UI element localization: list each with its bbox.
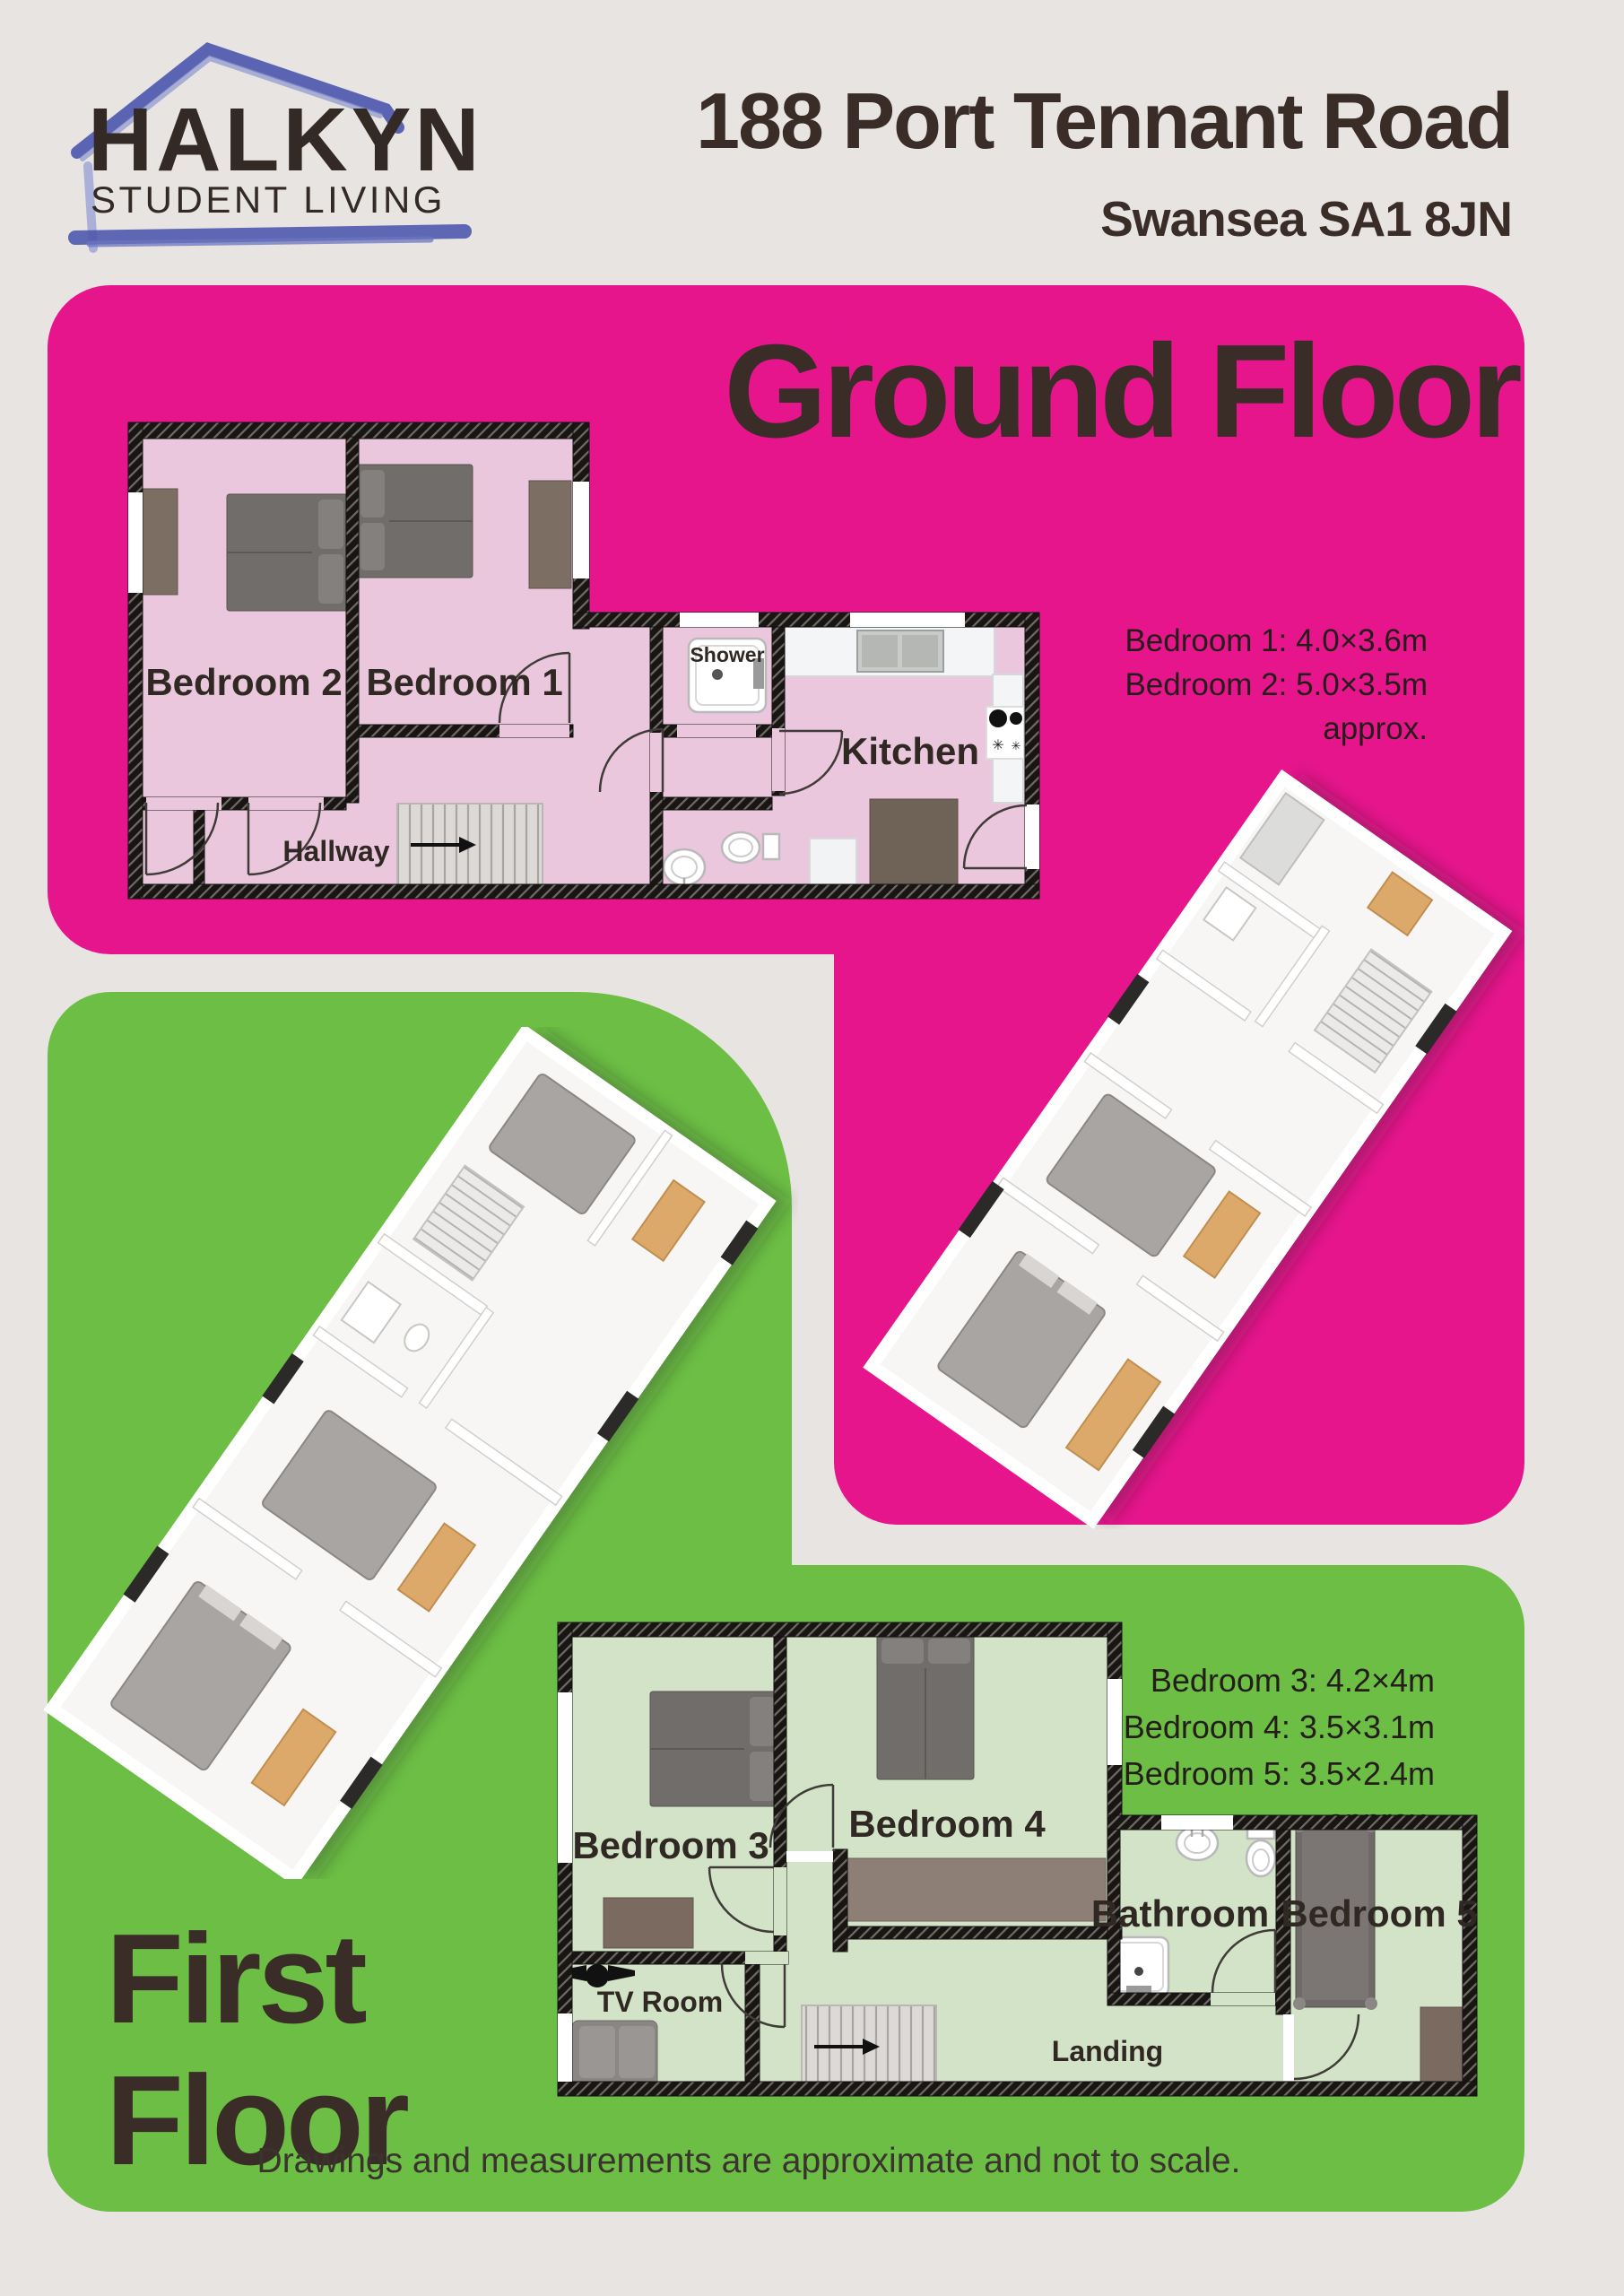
page-title: 188 Port Tennant Road bbox=[696, 75, 1512, 167]
first-floor-2d-plan: Bedroom 3 Bedroom 4 Bedroom 5 Bathroom T… bbox=[554, 1616, 1482, 2105]
fridge bbox=[810, 839, 856, 886]
room-label-hallway: Hallway bbox=[282, 835, 389, 867]
dresser bbox=[846, 1858, 1106, 1921]
room-label-landing: Landing bbox=[1052, 2035, 1163, 2067]
room-label-bedroom2: Bedroom 2 bbox=[145, 661, 342, 703]
room-label-shower: Shower bbox=[690, 643, 764, 666]
measurement-line: approx. bbox=[1125, 707, 1428, 751]
staircase bbox=[397, 804, 543, 886]
sofa bbox=[572, 2021, 657, 2089]
toilet bbox=[722, 832, 779, 863]
door-leaf bbox=[1283, 2014, 1294, 2081]
ground-floor-3d-render bbox=[861, 749, 1524, 1529]
door-leaf bbox=[786, 1851, 833, 1862]
double-bed bbox=[650, 1692, 780, 1806]
double-bed bbox=[227, 494, 350, 611]
room-label-tv-room: TV Room bbox=[597, 1986, 723, 2018]
halkyn-logo: HALKYN STUDENT LIVING bbox=[36, 22, 502, 274]
logo-underline-stroke-2 bbox=[90, 239, 430, 244]
room-label-bedroom4: Bedroom 4 bbox=[848, 1803, 1046, 1845]
room-label-bedroom5: Bedroom 5 bbox=[1281, 1892, 1477, 1935]
floorplan-page: HALKYN STUDENT LIVING 188 Port Tennant R… bbox=[0, 0, 1624, 2296]
staircase bbox=[802, 2005, 936, 2086]
double-bed bbox=[354, 465, 473, 578]
room-label-bedroom3: Bedroom 3 bbox=[572, 1824, 769, 1866]
first-floor-heading-line1: First bbox=[106, 1909, 406, 2050]
dresser bbox=[604, 1898, 693, 1948]
toilet bbox=[1246, 1826, 1275, 1876]
ground-floor-measurements: Bedroom 1: 4.0×3.6m Bedroom 2: 5.0×3.5m … bbox=[1125, 619, 1428, 751]
logo-name: HALKYN bbox=[88, 90, 483, 190]
measurement-line: Bedroom 1: 4.0×3.6m bbox=[1125, 619, 1428, 663]
wardrobe bbox=[529, 481, 571, 588]
double-bed bbox=[877, 1634, 974, 1779]
room-label-bathroom: Bathroom bbox=[1091, 1892, 1269, 1935]
room-label-bedroom1: Bedroom 1 bbox=[366, 661, 562, 703]
logo-tagline: STUDENT LIVING bbox=[91, 178, 446, 221]
measurement-line: Bedroom 2: 5.0×3.5m bbox=[1125, 663, 1428, 707]
disclaimer-text: Drawings and measurements are approximat… bbox=[0, 2142, 1498, 2181]
basin bbox=[1177, 1826, 1218, 1860]
page-subtitle: Swansea SA1 8JN bbox=[696, 190, 1512, 248]
